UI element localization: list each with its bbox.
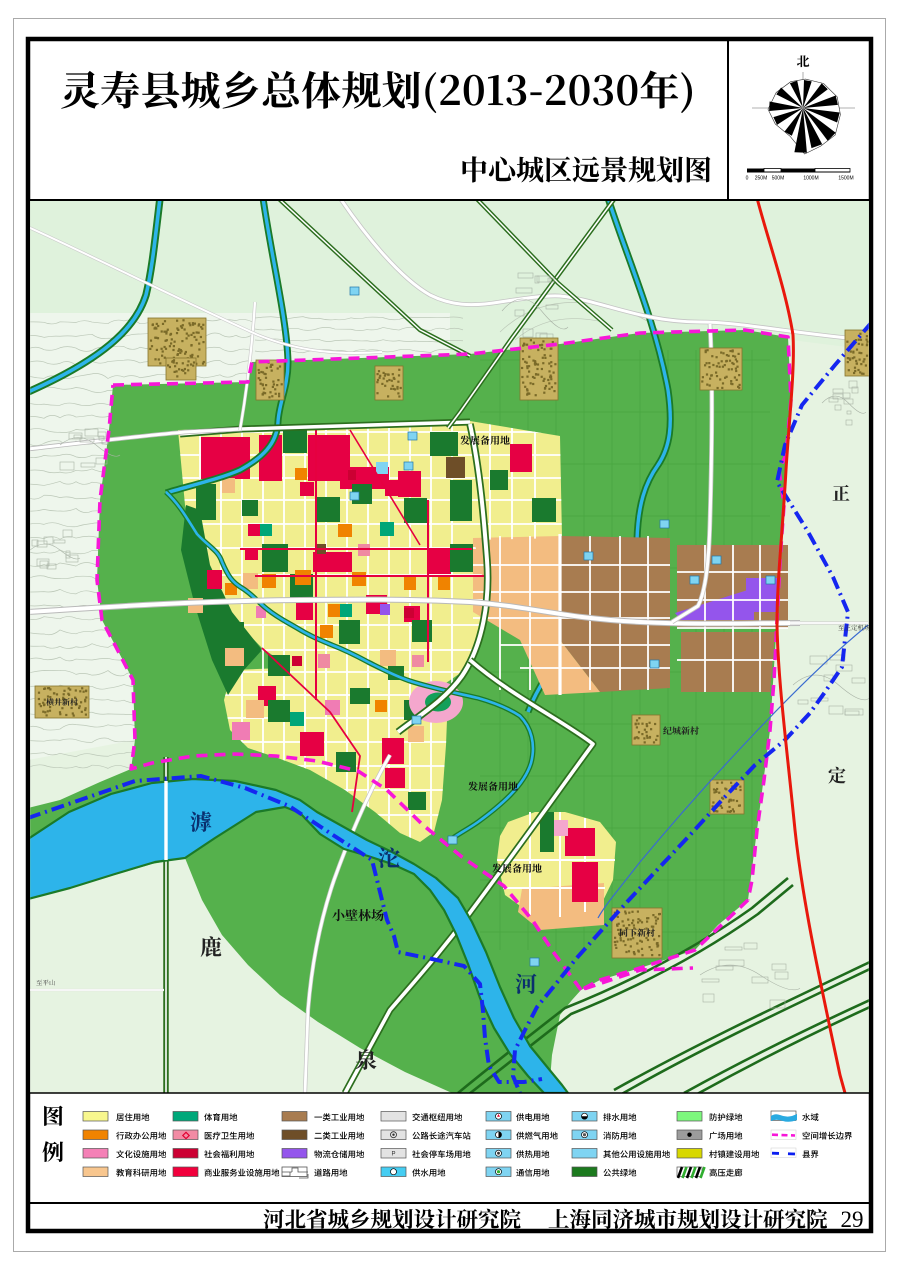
svg-text:P: P	[391, 1151, 395, 1157]
svg-text:250M: 250M	[755, 176, 768, 182]
svg-text:0: 0	[746, 176, 749, 182]
svg-text:500M: 500M	[772, 176, 785, 182]
svg-text:29: 29	[841, 1207, 864, 1232]
svg-text:1500M: 1500M	[838, 176, 853, 182]
svg-text:1000M: 1000M	[803, 176, 818, 182]
